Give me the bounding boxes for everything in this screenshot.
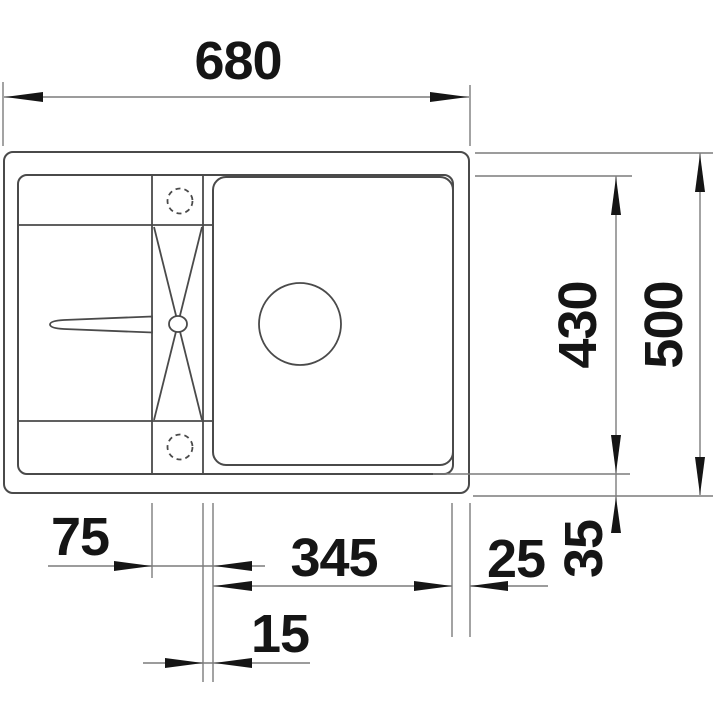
arrow-step-offset-right	[214, 658, 252, 668]
tap-hole-bottom	[168, 435, 193, 460]
arrow-overall-width-right	[430, 92, 468, 102]
dim-label-tap-ledge-width: 75	[51, 507, 109, 567]
arrow-step-offset-left	[165, 658, 203, 668]
arrow-tap-ledge-left	[114, 561, 152, 571]
dim-label-step-offset: 15	[251, 604, 309, 664]
main-bowl	[213, 177, 453, 465]
arrow-overall-depth-bottom	[695, 457, 705, 495]
arrow-bowl-width-right	[414, 581, 452, 591]
dim-label-bowl-right-offset: 25	[487, 529, 545, 589]
cross-brace-hub	[169, 316, 187, 332]
dim-label-bowl-depth: 430	[548, 281, 608, 368]
sink-plan	[4, 152, 469, 493]
arrow-bowl-depth-top	[611, 177, 621, 215]
extension-lines	[3, 82, 713, 682]
arrow-overall-width-left	[5, 92, 43, 102]
drainboard-groove	[50, 317, 152, 333]
dim-label-bowl-width: 345	[290, 528, 377, 588]
dim-label-overall-depth: 500	[634, 281, 694, 368]
arrow-tap-ledge-right	[214, 561, 252, 571]
arrow-overall-depth-top	[695, 154, 705, 192]
arrow-bowl-width-left	[214, 581, 252, 591]
dim-label-overall-width: 680	[194, 31, 281, 91]
drawing-svg: 680 430 500 75 345 25 35 15	[0, 0, 720, 720]
drain-hole	[259, 283, 341, 365]
dim-label-front-rim-depth: 35	[554, 520, 614, 578]
sink-technical-drawing: 680 430 500 75 345 25 35 15	[0, 0, 720, 720]
dimension-labels: 680 430 500 75 345 25 35 15	[51, 31, 694, 664]
tap-hole-top	[168, 189, 193, 214]
arrow-bowl-depth-bottom	[611, 435, 621, 473]
